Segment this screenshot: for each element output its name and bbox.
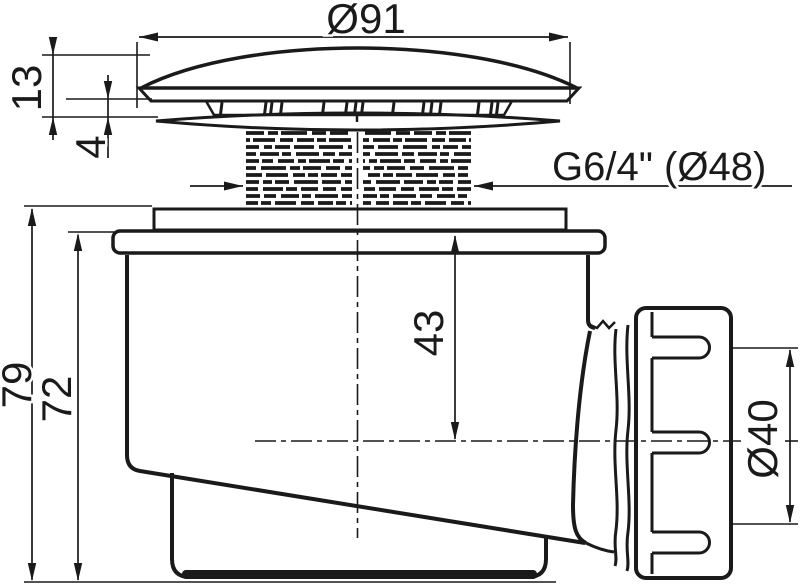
body-outlet-joint [586,543,614,552]
flange-upper-plate [154,209,566,230]
dim-label-thread-size: G6/4" (Ø48) [552,145,766,189]
body-lower-bowl [172,473,546,577]
dim-label-cap-gap: 4 [67,135,114,158]
body-bottom-wall [182,570,537,579]
dim-label-body-height: 72 [33,376,80,423]
dim-label-cap-diameter: Ø91 [326,0,405,42]
outlet-group [588,308,731,578]
body-group [127,255,614,579]
flange-lower-plate [113,231,605,253]
dim-label-outlet-diameter: Ø40 [739,399,786,478]
break-line-left [615,329,617,566]
dim-label-cap-height: 13 [3,65,50,112]
dim-label-depth-to-axis: 43 [405,310,452,357]
thread-hatch [246,129,471,207]
outlet-pipe-outline [636,308,731,578]
cap-group [139,48,579,130]
drawing-canvas: Ø91 13 4 G6/4" (Ø48) 43 79 72 Ø40 [0,0,800,584]
break-line-right [627,325,629,571]
body-right-arc [573,331,590,543]
break-top-zigzag [588,321,615,328]
body-left-wall [127,255,585,543]
technical-drawing: Ø91 13 4 G6/4" (Ø48) 43 79 72 Ø40 [0,0,800,584]
flange-group [113,209,605,253]
cap-rim [139,88,579,101]
body-right-neck [588,255,595,328]
cap-dome [141,48,577,88]
